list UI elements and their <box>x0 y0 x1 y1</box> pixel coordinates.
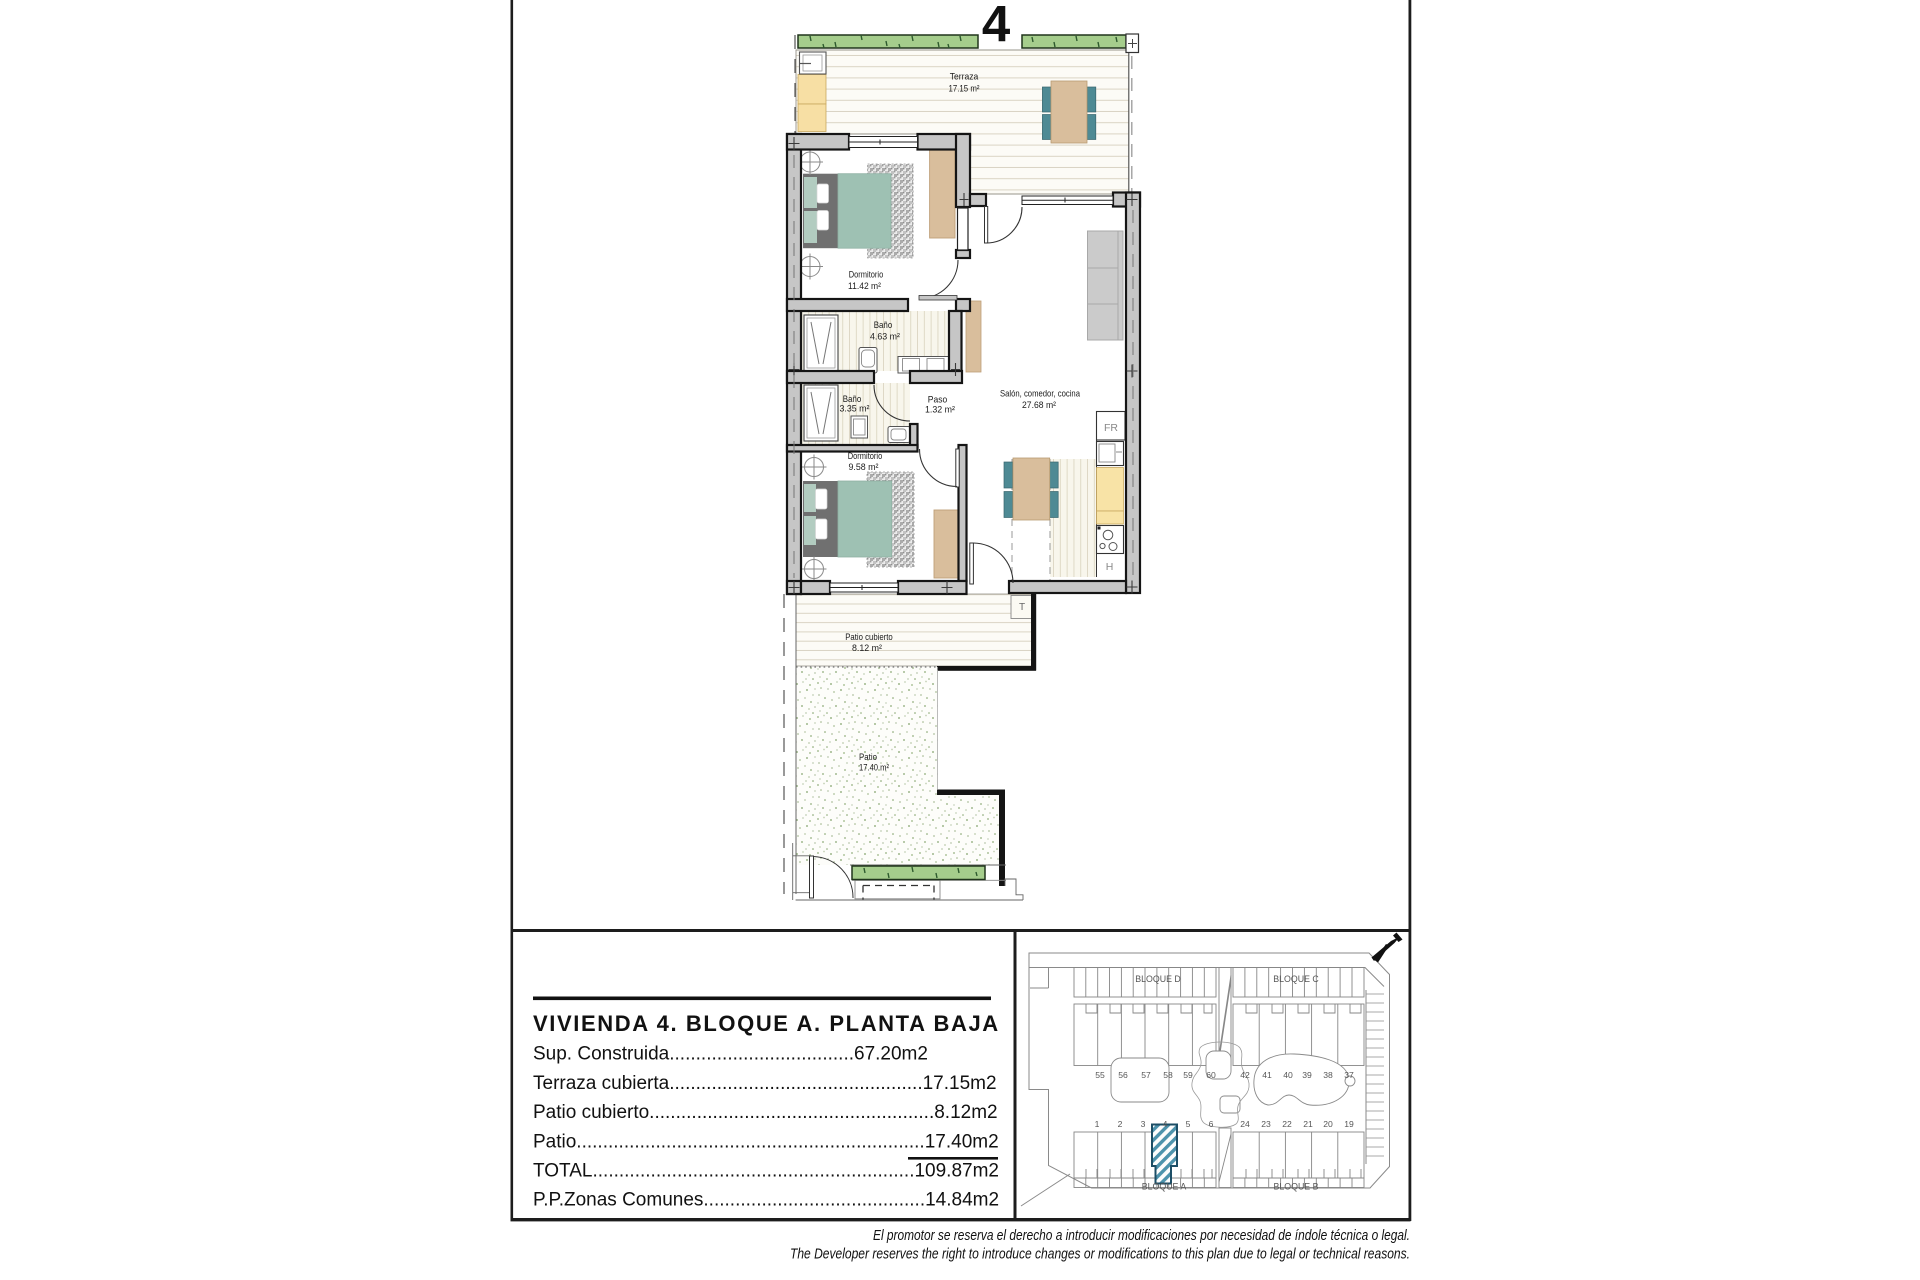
svg-text:5: 5 <box>1186 1119 1191 1129</box>
svg-text:11.42 m²: 11.42 m² <box>848 281 881 291</box>
svg-text:20: 20 <box>1323 1119 1333 1129</box>
svg-text:Terraza cubierta..............: Terraza cubierta........................… <box>533 1073 997 1094</box>
svg-text:23: 23 <box>1261 1119 1271 1129</box>
svg-text:24: 24 <box>1240 1119 1250 1129</box>
svg-text:H: H <box>1106 561 1114 573</box>
svg-text:VIVIENDA 4. BLOQUE A. PLANTA B: VIVIENDA 4. BLOQUE A. PLANTA BAJA <box>533 1011 1000 1036</box>
svg-text:55: 55 <box>1095 1070 1105 1080</box>
svg-text:37: 37 <box>1344 1070 1354 1080</box>
svg-text:17.15 m²: 17.15 m² <box>949 84 980 94</box>
svg-text:57: 57 <box>1141 1070 1151 1080</box>
svg-text:TOTAL.........................: TOTAL...................................… <box>533 1161 999 1182</box>
svg-text:38: 38 <box>1323 1070 1333 1080</box>
svg-text:21: 21 <box>1303 1119 1313 1129</box>
svg-text:Patio.........................: Patio...................................… <box>533 1131 999 1152</box>
svg-text:6: 6 <box>1209 1119 1214 1129</box>
svg-text:27.68 m²: 27.68 m² <box>1022 400 1056 410</box>
svg-text:Baño: Baño <box>874 320 893 330</box>
svg-text:17.40 m²: 17.40 m² <box>859 763 889 773</box>
svg-text:BLOQUE C: BLOQUE C <box>1273 974 1319 984</box>
svg-text:39: 39 <box>1302 1070 1312 1080</box>
svg-text:9.58 m²: 9.58 m² <box>849 462 879 472</box>
svg-text:22: 22 <box>1282 1119 1292 1129</box>
svg-text:Salón, comedor, cocina: Salón, comedor, cocina <box>1000 389 1081 399</box>
svg-text:Sup. Construida...............: Sup. Construida.........................… <box>533 1043 928 1064</box>
svg-text:Dormitorio: Dormitorio <box>848 451 883 461</box>
svg-text:1.32 m²: 1.32 m² <box>925 405 955 415</box>
svg-text:Paso: Paso <box>928 395 948 405</box>
svg-text:40: 40 <box>1283 1070 1293 1080</box>
svg-text:FR: FR <box>1104 422 1118 434</box>
svg-text:BLOQUE A: BLOQUE A <box>1142 1182 1187 1192</box>
svg-text:Patio cubierto................: Patio cubierto..........................… <box>533 1102 998 1123</box>
svg-text:41: 41 <box>1262 1070 1272 1080</box>
svg-text:Patio cubierto: Patio cubierto <box>845 632 893 642</box>
svg-text:1: 1 <box>1095 1119 1100 1129</box>
svg-text:8.12 m²: 8.12 m² <box>852 643 882 653</box>
svg-text:P.P.Zonas Comunes.............: P.P.Zonas Comunes.......................… <box>533 1190 999 1211</box>
svg-text:El promotor se reserva el dere: El promotor se reserva el derecho a intr… <box>873 1227 1410 1244</box>
svg-text:BLOQUE D: BLOQUE D <box>1135 974 1180 984</box>
svg-text:Patio: Patio <box>859 752 877 762</box>
svg-text:T: T <box>1019 602 1025 613</box>
svg-text:4: 4 <box>1163 1119 1168 1129</box>
svg-text:Dormitorio: Dormitorio <box>849 270 884 280</box>
svg-text:BLOQUE B: BLOQUE B <box>1274 1182 1319 1192</box>
svg-text:4: 4 <box>982 0 1011 52</box>
svg-text:19: 19 <box>1344 1119 1354 1129</box>
svg-text:Baño: Baño <box>843 394 862 404</box>
svg-text:59: 59 <box>1183 1070 1193 1080</box>
svg-text:Terraza: Terraza <box>950 72 979 82</box>
svg-text:56: 56 <box>1118 1070 1128 1080</box>
svg-text:58: 58 <box>1163 1070 1173 1080</box>
svg-text:4.63 m²: 4.63 m² <box>870 332 900 342</box>
svg-text:2: 2 <box>1118 1119 1123 1129</box>
svg-text:The Developer reserves the rig: The Developer reserves the right to intr… <box>790 1246 1410 1263</box>
svg-text:3: 3 <box>1141 1119 1146 1129</box>
svg-text:42: 42 <box>1240 1070 1250 1080</box>
svg-text:60: 60 <box>1206 1070 1216 1080</box>
svg-text:3.35 m²: 3.35 m² <box>840 404 870 414</box>
